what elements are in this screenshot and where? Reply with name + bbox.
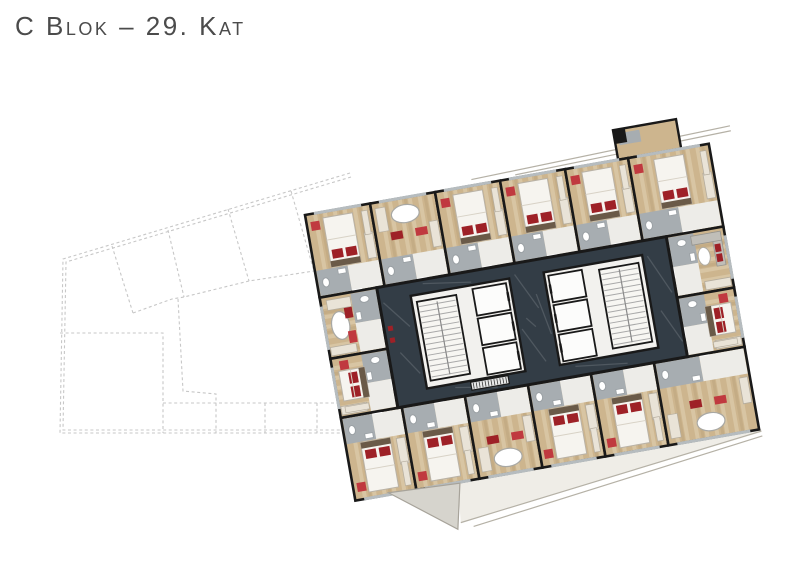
elevator-cell <box>548 270 586 302</box>
sink <box>690 253 696 262</box>
entry-floor <box>348 260 383 291</box>
bed-pillow <box>630 402 642 413</box>
bed-pillow <box>540 211 552 222</box>
annex-wall-corner <box>613 128 627 144</box>
bathroom-floor <box>511 231 547 262</box>
bathroom-floor <box>593 370 628 400</box>
entry-floor <box>478 237 513 268</box>
bathroom-floor <box>350 289 380 323</box>
sink <box>553 399 562 405</box>
elevator-cell <box>483 342 521 374</box>
bathroom-floor <box>467 392 502 422</box>
bed-pillow <box>716 321 727 333</box>
bed-pillow <box>553 415 565 426</box>
elevator-cell <box>559 329 597 361</box>
sink <box>616 388 625 394</box>
armchair <box>570 175 580 185</box>
sink <box>490 411 499 417</box>
armchair <box>606 437 616 447</box>
bathroom-floor <box>381 254 417 285</box>
dashed-boundary-line <box>178 299 216 433</box>
bathroom-floor <box>576 220 611 250</box>
entry-floor <box>413 248 448 279</box>
armchair <box>505 186 515 196</box>
bed-pillow <box>616 404 628 415</box>
bed-pillow <box>345 246 357 257</box>
bed-pillow <box>331 248 343 259</box>
corridor-bench <box>390 337 396 343</box>
sink <box>468 245 477 251</box>
dashed-boundary-line <box>60 333 163 433</box>
bed-pillow <box>365 448 377 459</box>
bed-pillow <box>351 385 362 397</box>
bathroom-floor <box>404 403 439 433</box>
sink <box>338 268 347 274</box>
bed-pillow <box>662 190 674 201</box>
armchair <box>356 482 366 492</box>
bed-pillow <box>461 225 473 236</box>
page: C Blok – 29. Kat <box>0 0 800 576</box>
entry-floor <box>543 226 578 257</box>
sink <box>533 233 542 239</box>
sink <box>356 312 362 321</box>
sink <box>365 433 374 439</box>
core-block <box>544 255 659 365</box>
armchair <box>417 471 427 481</box>
core-block <box>411 279 526 389</box>
dashed-boundary-line <box>228 209 249 281</box>
bathroom-floor <box>446 242 482 273</box>
bathroom-floor <box>316 265 352 296</box>
elevator-cell <box>472 283 510 315</box>
armchair <box>339 360 349 370</box>
bed-pillow <box>676 187 688 198</box>
bed-pillow <box>427 437 439 448</box>
armchair <box>718 293 728 303</box>
entry-floor <box>607 214 641 244</box>
sink <box>700 313 706 322</box>
armchair <box>633 164 643 174</box>
elevator-cell <box>478 313 516 345</box>
entry-floor <box>673 263 703 296</box>
corridor-bench <box>388 325 394 331</box>
bed-pillow <box>526 214 538 225</box>
bed-pillow <box>379 446 391 457</box>
bathroom-floor <box>679 294 709 327</box>
sink <box>597 222 606 228</box>
dashed-boundary-line <box>168 230 184 297</box>
sink <box>692 375 701 381</box>
bed-pillow <box>604 200 616 211</box>
bed-pillow <box>590 202 602 213</box>
bed-pillow <box>567 413 579 424</box>
sink <box>366 372 372 381</box>
sink <box>403 256 412 262</box>
elevator-cell <box>553 299 591 331</box>
floor-plan <box>0 0 800 576</box>
bathroom-floor <box>530 381 565 411</box>
bed-pillow <box>475 223 487 234</box>
bed-pillow <box>348 371 359 383</box>
bed-pillow <box>713 307 724 319</box>
bathroom-floor <box>343 414 377 444</box>
tower-plan <box>300 110 791 546</box>
dashed-boundary-line <box>112 246 133 313</box>
bed-pillow <box>441 435 453 446</box>
sink <box>668 209 677 215</box>
armchair <box>543 449 553 459</box>
sink <box>427 422 436 428</box>
armchair <box>440 198 450 208</box>
armchair <box>310 221 320 231</box>
